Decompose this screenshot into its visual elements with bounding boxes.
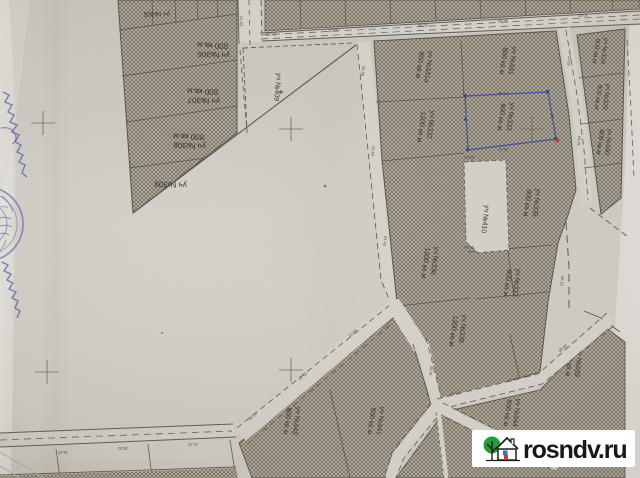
- svg-text:rosndv.ru: rosndv.ru: [523, 436, 627, 464]
